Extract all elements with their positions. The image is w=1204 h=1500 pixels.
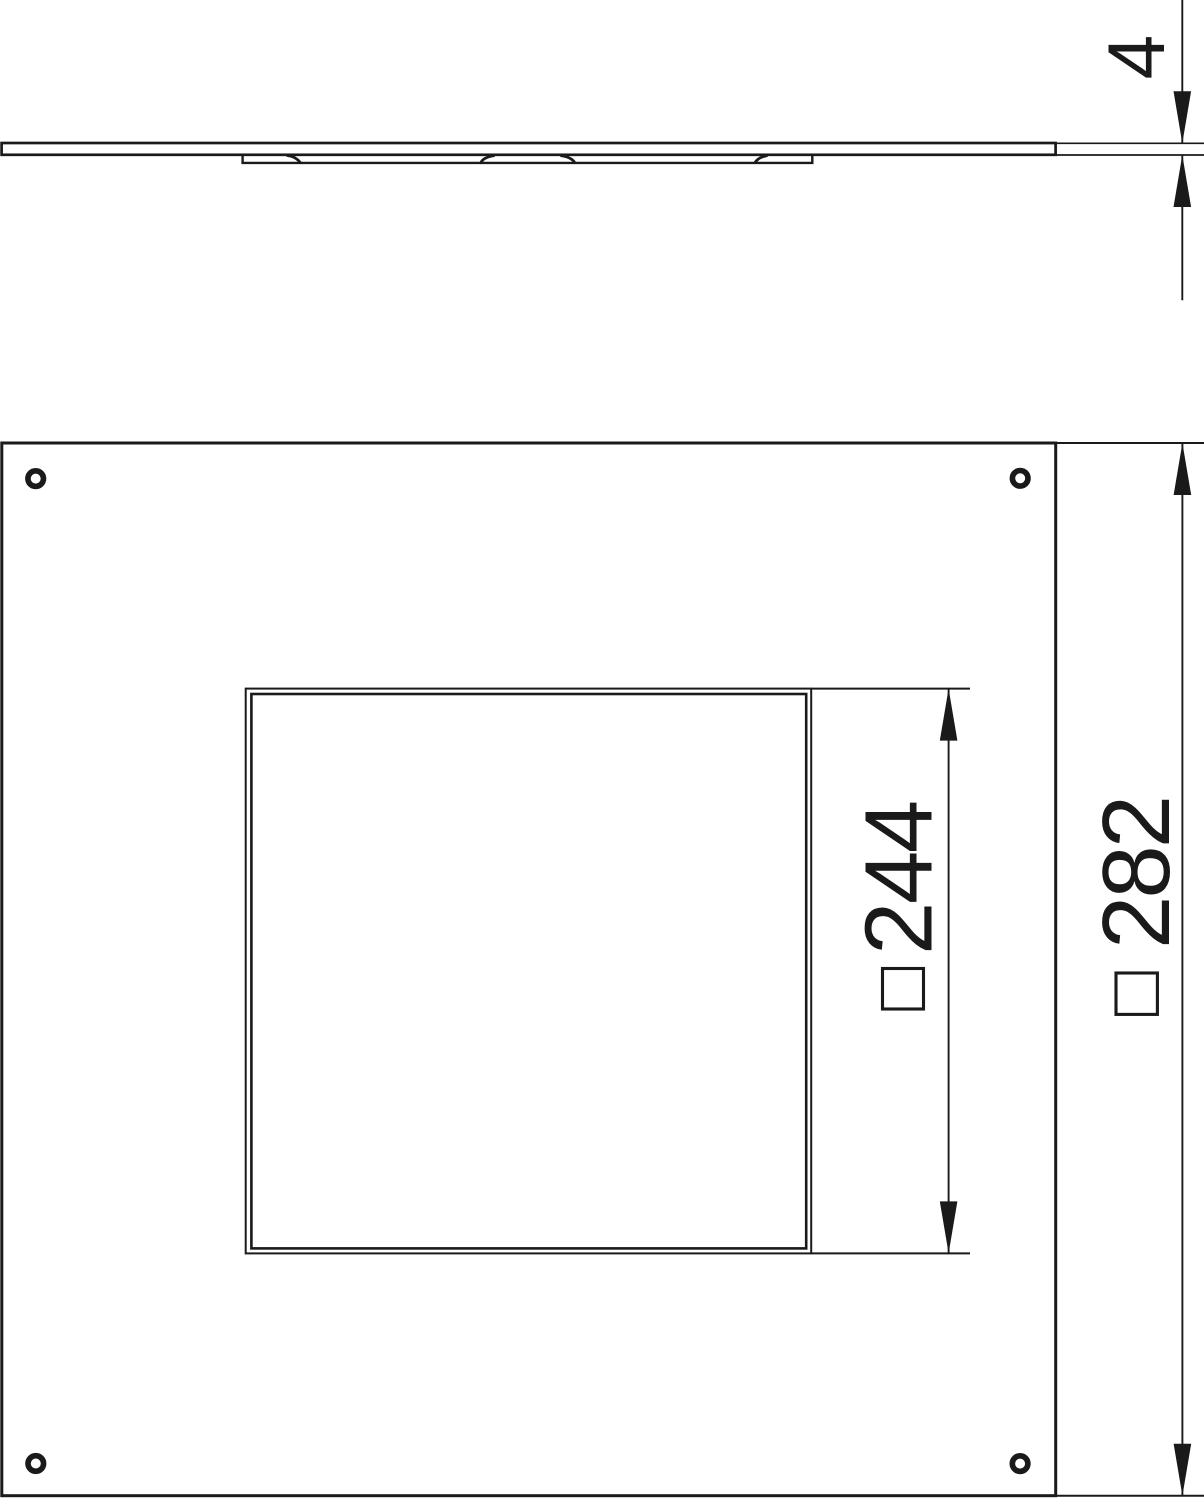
svg-text:282: 282 — [1083, 798, 1190, 949]
svg-text:4: 4 — [1092, 35, 1182, 80]
svg-text:244: 244 — [846, 802, 953, 955]
